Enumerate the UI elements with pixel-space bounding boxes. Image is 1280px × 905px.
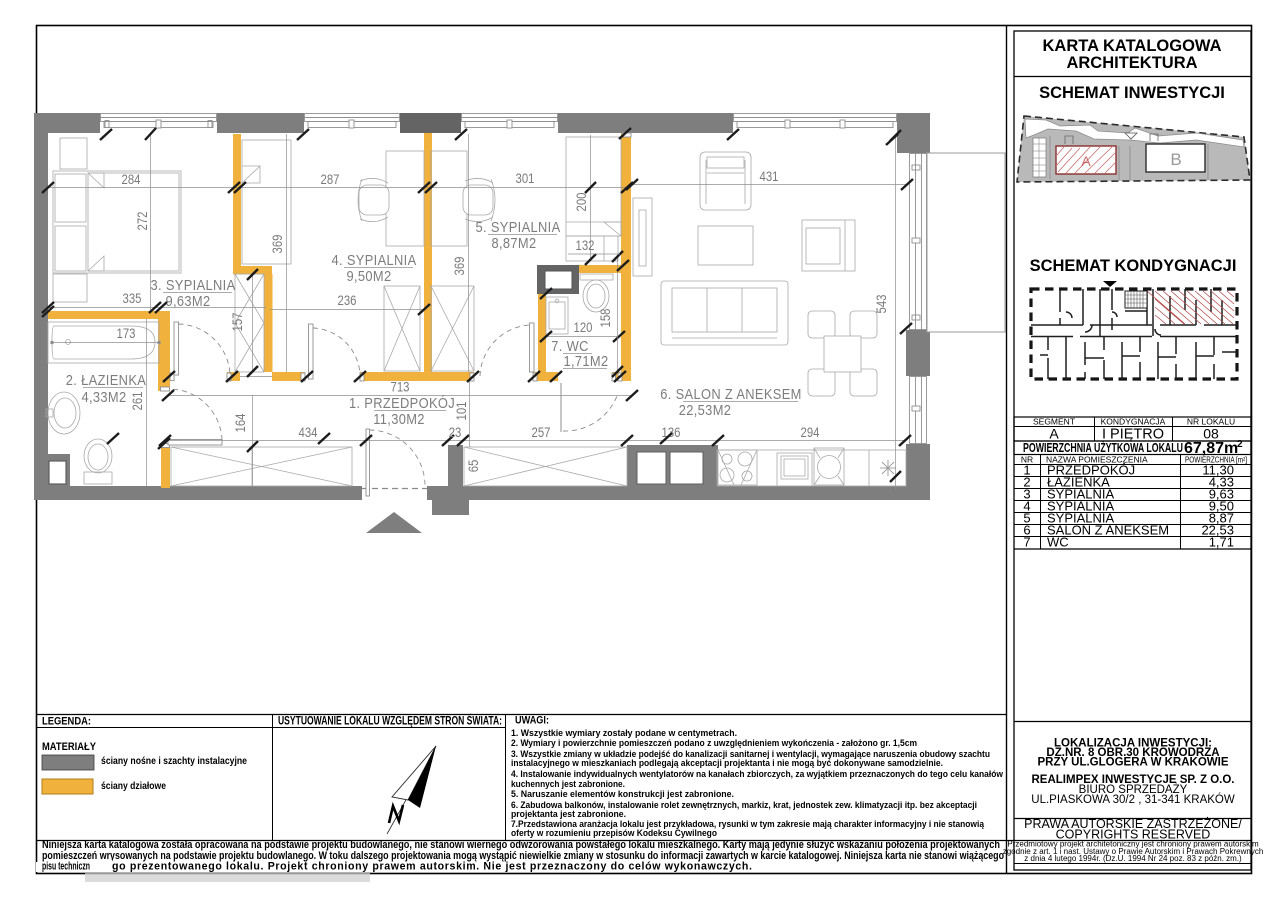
svg-text:8,87M2: 8,87M2	[491, 234, 536, 251]
svg-text:713: 713	[391, 380, 410, 395]
svg-text:PRZY UL.GLOGERA W KRAKOWIE: PRZY UL.GLOGERA W KRAKOWIE	[1037, 757, 1228, 769]
svg-text:132: 132	[576, 238, 595, 253]
svg-text:POWIERZCHNIA UŻYTKOWA LOKALU: POWIERZCHNIA UŻYTKOWA LOKALU	[1023, 440, 1183, 455]
svg-text:z dnia 4 lutego 1994r. (Dz.U.: z dnia 4 lutego 1994r. (Dz.U. 1994 Nr 24…	[1024, 854, 1242, 863]
svg-text:287: 287	[321, 172, 340, 187]
svg-text:257: 257	[532, 425, 551, 440]
svg-text:oferty w rozumieniu przepisów: oferty w rozumieniu przepisów Kodeksu Cy…	[511, 827, 717, 838]
svg-text:4. SYPIALNIA: 4. SYPIALNIA	[331, 251, 416, 268]
svg-text:SCHEMAT KONDYGNACJI: SCHEMAT KONDYGNACJI	[1030, 257, 1237, 275]
svg-text:22,53M2: 22,53M2	[679, 401, 732, 418]
svg-text:294: 294	[801, 425, 820, 440]
svg-text:LEGENDA:: LEGENDA:	[42, 716, 91, 728]
svg-text:ściany nośne i szachty instala: ściany nośne i szachty instalacyjne	[101, 755, 247, 767]
svg-text:369: 369	[270, 234, 285, 253]
svg-text:272: 272	[135, 211, 150, 230]
svg-text:9,63M2: 9,63M2	[165, 292, 210, 309]
svg-text:120: 120	[574, 320, 593, 335]
svg-text:USYTUOWANIE LOKALU WZGLĘDEM ST: USYTUOWANIE LOKALU WZGLĘDEM STRON ŚWIATA…	[278, 715, 502, 728]
svg-text:A: A	[1081, 153, 1091, 169]
svg-text:UL.PIASKOWA 30/2 , 31-341 KRA: UL.PIASKOWA 30/2 , 31-341 KRAKÓW	[1031, 793, 1235, 806]
svg-text:1,71: 1,71	[1209, 535, 1234, 550]
svg-text:1. PRZEDPOKÓJ: 1. PRZEDPOKÓJ	[349, 394, 455, 411]
svg-text:B: B	[1170, 150, 1181, 169]
svg-text:3. SYPIALNIA: 3. SYPIALNIA	[150, 276, 235, 293]
svg-text:SCHEMAT INWESTYCJI: SCHEMAT INWESTYCJI	[1039, 84, 1225, 102]
svg-text:434: 434	[299, 425, 318, 440]
svg-text:2: 2	[1237, 439, 1243, 450]
svg-text:431: 431	[760, 169, 779, 184]
svg-text:MATERIAŁY: MATERIAŁY	[42, 741, 97, 753]
svg-text:WC: WC	[1047, 535, 1069, 550]
svg-text:KONDYGNACJA: KONDYGNACJA	[1101, 417, 1166, 427]
svg-text:157: 157	[230, 312, 245, 331]
svg-text:369: 369	[452, 256, 467, 275]
svg-text:543: 543	[874, 294, 889, 313]
svg-text:23: 23	[449, 425, 462, 440]
svg-text:pisu techniczn: pisu techniczn	[42, 861, 90, 873]
svg-text:158: 158	[598, 308, 613, 327]
svg-text:5. SYPIALNIA: 5. SYPIALNIA	[475, 218, 560, 235]
svg-text:1,71M2: 1,71M2	[563, 352, 608, 369]
svg-text:7: 7	[1023, 535, 1030, 550]
svg-text:101: 101	[454, 401, 469, 420]
svg-text:UWAGI:: UWAGI:	[515, 715, 549, 727]
svg-text:9,50M2: 9,50M2	[346, 267, 391, 284]
svg-text:KARTA KATALOGOWA: KARTA KATALOGOWA	[1042, 37, 1221, 55]
svg-text:4,33M2: 4,33M2	[81, 388, 126, 405]
svg-text:5. Naruszanie elementów konstr: 5. Naruszanie elementów konstrukcji jest…	[511, 788, 734, 799]
svg-text:6. SALON Z ANEKSEM: 6. SALON Z ANEKSEM	[660, 385, 801, 402]
svg-text:173: 173	[117, 326, 136, 341]
svg-text:236: 236	[338, 293, 357, 308]
svg-text:284: 284	[122, 172, 141, 187]
svg-text:2. Wymiary i powierzchnie pomi: 2. Wymiary i powierzchnie pomieszczeń po…	[511, 737, 917, 748]
svg-text:301: 301	[516, 171, 535, 186]
svg-text:200: 200	[574, 192, 589, 211]
svg-text:335: 335	[123, 291, 142, 306]
svg-text:164: 164	[233, 413, 248, 432]
svg-text:ARCHITEKTURA: ARCHITEKTURA	[1066, 54, 1197, 72]
svg-text:go prezentowanego lokalu. Proj: go prezentowanego lokalu. Projekt chroni…	[112, 861, 752, 873]
svg-text:65: 65	[466, 460, 481, 473]
svg-text:2. ŁAZIENKA: 2. ŁAZIENKA	[66, 371, 147, 388]
svg-text:261: 261	[130, 391, 145, 410]
svg-text:11,30M2: 11,30M2	[373, 410, 425, 427]
svg-text:ściany działowe: ściany działowe	[101, 780, 166, 792]
svg-text:67,87m: 67,87m	[1184, 440, 1238, 457]
svg-text:instalacyjnego w mieszkaniach: instalacyjnego w mieszkaniach podlegają …	[511, 757, 943, 768]
